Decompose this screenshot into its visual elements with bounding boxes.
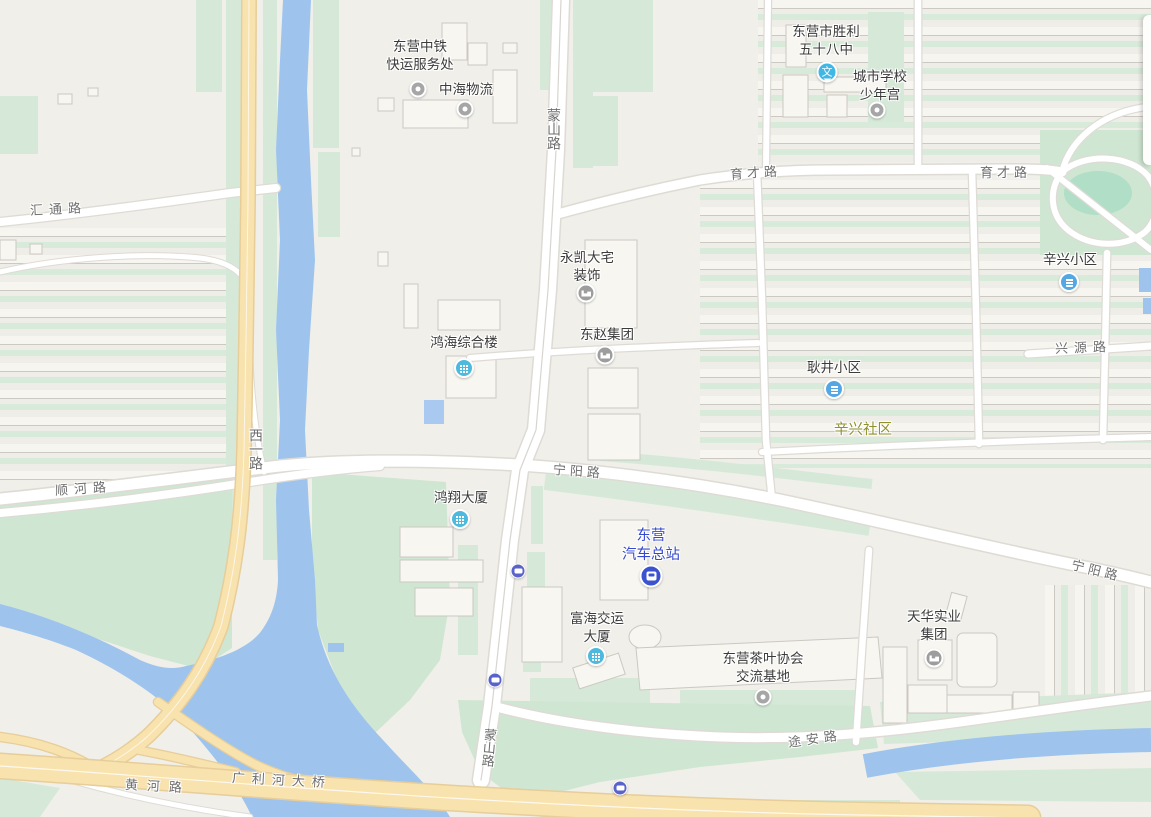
road-label-xingyuan: 兴源路: [1055, 336, 1113, 357]
poi-label-xinxing-shequ[interactable]: 辛兴社区: [834, 421, 892, 439]
road-label-huitong: 汇通路: [30, 197, 88, 219]
road-label-mengshan-south: 蒙山路: [475, 727, 498, 768]
poi-icon-zhongtie[interactable]: [410, 81, 427, 98]
map-canvas[interactable]: 蒙山路 蒙山路 育才路 育才路 汇通路 西一路 顺河路 宁阳路 宁阳路 兴源路 …: [0, 0, 1151, 817]
bus-glyph: [491, 678, 499, 683]
building-icon-hongxiang[interactable]: [450, 509, 470, 529]
dot-glyph: [463, 107, 468, 112]
poi-label-hongxiang[interactable]: 鸿翔大厦: [434, 489, 488, 507]
residence-glyph: [1066, 278, 1073, 287]
building-glyph: [460, 364, 468, 373]
bus-glyph: [616, 786, 624, 791]
residence-icon-xinxing[interactable]: [1059, 272, 1079, 292]
bus-stop-icon-2[interactable]: [488, 673, 503, 688]
poi-label-gengjing[interactable]: 耿井小区: [807, 359, 861, 377]
building-icon-fuhai[interactable]: [586, 646, 606, 666]
poi-label-xinxing-xiaoqu[interactable]: 辛兴小区: [1043, 251, 1097, 269]
road-label-shunhe: 顺河路: [54, 476, 112, 499]
factory-icon-tianhua[interactable]: [925, 649, 944, 668]
map-base-layer: [0, 0, 1151, 817]
road-label-mengshan-north: 蒙山路: [543, 108, 563, 150]
bus-stop-icon-1[interactable]: [511, 564, 526, 579]
bus-glyph: [646, 572, 656, 581]
poi-label-wusibazhong[interactable]: 东营市胜利五十八中: [792, 23, 860, 59]
poi-icon-zhonghai[interactable]: [457, 101, 474, 118]
bus-station-icon[interactable]: [640, 565, 663, 588]
poi-label-dongzhao[interactable]: 东赵集团: [580, 326, 634, 344]
poi-icon-chaye[interactable]: [755, 689, 772, 706]
dot-glyph: [761, 695, 766, 700]
dot-glyph: [875, 108, 880, 113]
poi-label-shaoniangong[interactable]: 城市学校少年宫: [853, 68, 907, 104]
poi-label-fuhai[interactable]: 富海交运大厦: [570, 610, 624, 646]
poi-label-chaye[interactable]: 东营茶叶协会交流基地: [723, 650, 804, 686]
poi-icon-shaoniangong[interactable]: [869, 102, 886, 119]
building-glyph: [456, 515, 464, 524]
factory-glyph: [929, 655, 939, 662]
dot-glyph: [416, 87, 421, 92]
road-label-yucai-west: 育才路: [729, 160, 781, 183]
factory-icon-yongkai[interactable]: [577, 284, 596, 303]
side-panel-edge[interactable]: [1143, 15, 1151, 165]
factory-glyph: [581, 290, 591, 297]
poi-label-zhongtie[interactable]: 东营中铁快运服务处: [386, 38, 454, 74]
poi-label-honghai[interactable]: 鸿海综合楼: [430, 334, 498, 352]
building-glyph: [592, 652, 600, 661]
residence-glyph: [831, 385, 838, 394]
bus-stop-icon-3[interactable]: [613, 781, 628, 796]
canal-southeast: [865, 740, 1151, 766]
school-glyph: 文: [822, 64, 833, 81]
bus-glyph: [514, 569, 522, 574]
building-icon-honghai[interactable]: [454, 358, 474, 378]
factory-glyph: [600, 352, 610, 359]
poi-label-qichezongzhan[interactable]: 东营汽车总站: [622, 527, 680, 565]
road-label-huanghe: 黄河路: [125, 774, 192, 796]
pool: [424, 400, 444, 424]
poi-label-zhonghai[interactable]: 中海物流: [439, 81, 493, 99]
road-label-ningyang-west: 宁阳路: [552, 459, 604, 482]
poi-label-yongkai[interactable]: 永凯大宅装饰: [560, 249, 614, 285]
road-label-xiyi: 西一路: [244, 428, 265, 470]
school-icon-wusibazhong[interactable]: 文: [817, 62, 838, 83]
road-label-yucai-east: 育才路: [980, 162, 1031, 181]
factory-icon-dongzhao[interactable]: [596, 346, 615, 365]
residence-icon-gengjing[interactable]: [824, 379, 844, 399]
poi-label-tianhua[interactable]: 天华实业集团: [907, 608, 961, 644]
